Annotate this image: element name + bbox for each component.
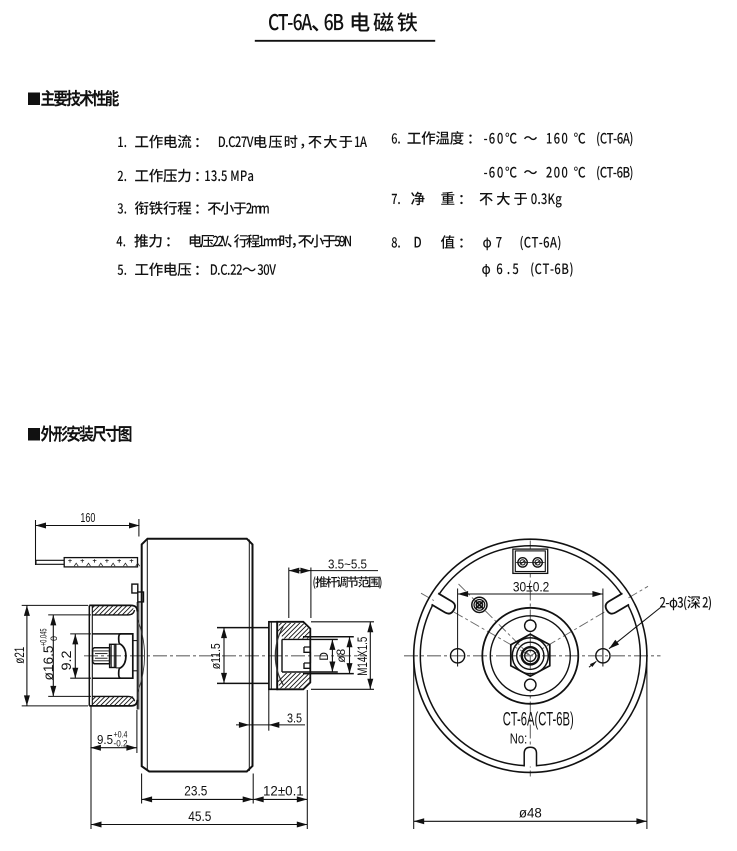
svg-text:+0.045: +0.045	[39, 629, 50, 647]
svg-text:ø11.5: ø11.5	[208, 643, 223, 669]
svg-text:ø16.5: ø16.5	[41, 646, 56, 681]
svg-text:30±0.2: 30±0.2	[513, 579, 550, 595]
svg-text:9.5: 9.5	[97, 732, 113, 747]
svg-text:M14X1.5: M14X1.5	[354, 637, 370, 676]
svg-text:12±0.1: 12±0.1	[263, 784, 304, 799]
svg-text:23.5: 23.5	[184, 784, 207, 799]
svg-text:9.2: 9.2	[59, 651, 74, 671]
svg-text:ø48: ø48	[519, 805, 542, 820]
svg-text:45.5: 45.5	[188, 809, 211, 824]
svg-text:0: 0	[49, 636, 59, 641]
svg-text:No:: No:	[510, 732, 527, 748]
svg-text:-0.2: -0.2	[114, 739, 128, 749]
svg-text:ø21: ø21	[11, 647, 27, 664]
svg-text:3.5~5.5: 3.5~5.5	[328, 556, 367, 571]
svg-text:D: D	[317, 652, 331, 661]
svg-text:CT-6A(CT-6B): CT-6A(CT-6B)	[503, 710, 574, 731]
svg-text:160: 160	[80, 511, 95, 525]
svg-text:3.5: 3.5	[287, 710, 302, 725]
svg-text:ø8: ø8	[334, 648, 348, 662]
